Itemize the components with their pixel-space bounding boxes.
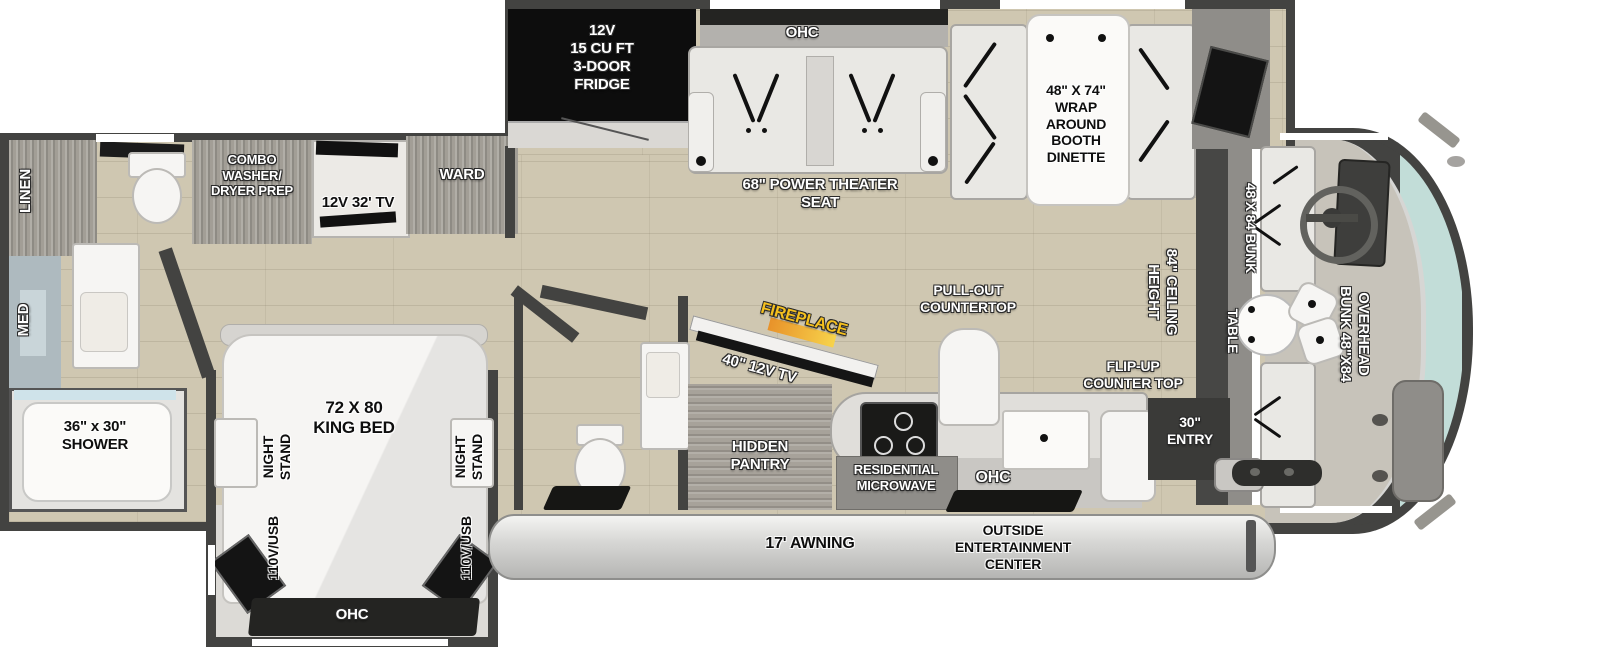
fridge-label: 12V 15 CU FT 3-DOOR FRIDGE: [518, 22, 686, 106]
washer-dryer-label: COMBO WASHER/ DRYER PREP: [196, 152, 308, 204]
armrest-dot: [696, 156, 706, 166]
night-stand-right-label: NIGHT STAND: [452, 415, 490, 499]
recline-dot: [746, 128, 751, 133]
rv-floorplan: LINEN MED 36" x 30" SHOWER COMBO WASHER/…: [0, 0, 1600, 647]
bedroom-tv-label: 12V 32' TV: [306, 194, 410, 212]
table-dot: [1098, 34, 1106, 42]
wardrobe-label: WARD: [426, 166, 498, 184]
round-table: [1236, 294, 1298, 356]
midbath-sink: [646, 352, 680, 398]
rear-toilet: [132, 168, 182, 224]
awning-label: 17' AWNING: [710, 534, 910, 556]
chair-dot: [1316, 336, 1324, 344]
window: [1280, 133, 1388, 140]
chair-dot: [1308, 300, 1316, 308]
window: [1000, 0, 1185, 9]
kitchen-mat: [945, 490, 1083, 512]
overhead-bunk-label: OVERHEAD BUNK 48"X84: [1332, 264, 1372, 404]
table-label: TABLE: [1223, 301, 1241, 361]
med-label: MED: [15, 280, 35, 360]
ohc-cabinet-strip: [700, 9, 948, 25]
night-stand-left-label: NIGHT STAND: [260, 415, 298, 499]
dinette-bench-right: [1126, 24, 1196, 200]
night-stand-left: [214, 418, 258, 488]
recline-dot: [762, 128, 767, 133]
hall-wall-stub: [505, 146, 515, 238]
midbath-mat: [543, 486, 632, 510]
linen-label: LINEN: [17, 136, 39, 246]
armrest-dot: [928, 156, 938, 166]
dinette-label: 48" X 74" WRAP AROUND BOOTH DINETTE: [1030, 82, 1122, 192]
kitchen-ohc-label: OHC: [958, 468, 1028, 488]
steering-spoke: [1306, 214, 1358, 222]
mat-dot: [1284, 468, 1294, 476]
cab-mat: [1232, 460, 1322, 486]
table-dot: [1248, 306, 1255, 313]
king-bed-label: 72 X 80 KING BED: [296, 398, 412, 438]
bath-sink: [80, 292, 128, 352]
recline-dot: [862, 128, 867, 133]
window: [710, 0, 940, 9]
theater-console: [806, 56, 834, 166]
outlet-right-label: 110V/USB: [458, 498, 476, 598]
mirror-top: [1447, 156, 1465, 167]
ohc-top-label: OHC: [772, 24, 832, 44]
mat-dot: [1250, 468, 1260, 476]
flip-up-label: FLIP-UP COUNTER TOP: [1058, 358, 1208, 396]
theater-seat-label: 68" POWER THEATER SEAT: [700, 176, 940, 216]
passenger-dash: [1392, 380, 1444, 502]
midbath-wall-left: [514, 294, 523, 510]
outlet-left-label: 110V/USB: [265, 498, 283, 598]
pantry-label: HIDDEN PANTRY: [700, 438, 820, 474]
window: [208, 545, 215, 595]
window: [96, 134, 174, 142]
fridge-base: [508, 121, 696, 148]
ceiling-height-label: 84" CEILING HEIGHT: [1140, 227, 1180, 357]
faucet: [1040, 434, 1048, 442]
shower-label: 36" x 30" SHOWER: [30, 418, 160, 454]
window: [252, 639, 448, 646]
outside-entertainment-label: OUTSIDE ENTERTAINMENT CENTER: [938, 522, 1088, 576]
table-dot: [1046, 34, 1054, 42]
shower-glass: [14, 390, 176, 400]
pull-out-countertop: [938, 328, 1000, 426]
bunk-label: 48 X 84 BUNK: [1239, 160, 1259, 296]
king-slide-wall-right: [488, 370, 498, 647]
bunk-seat-bottom: [1260, 362, 1316, 508]
burner: [874, 436, 893, 455]
king-slide-wall-left: [206, 370, 216, 647]
burner: [894, 412, 913, 431]
bedroom-tv: [316, 141, 398, 158]
bedroom-ohc-label: OHC: [322, 606, 382, 626]
cup-holder: [1372, 470, 1388, 482]
mirror-arm-top: [1417, 111, 1461, 149]
burner: [906, 436, 925, 455]
awning-end-cap: [1246, 520, 1256, 572]
table-dot: [1248, 336, 1255, 343]
pull-out-label: PULL-OUT COUNTERTOP: [898, 282, 1038, 320]
wardrobe: [406, 136, 518, 234]
cup-holder: [1372, 414, 1388, 426]
microwave-label: RESIDENTIAL MICROWAVE: [840, 462, 952, 496]
entry-label: 30" ENTRY: [1152, 414, 1228, 454]
recline-dot: [878, 128, 883, 133]
